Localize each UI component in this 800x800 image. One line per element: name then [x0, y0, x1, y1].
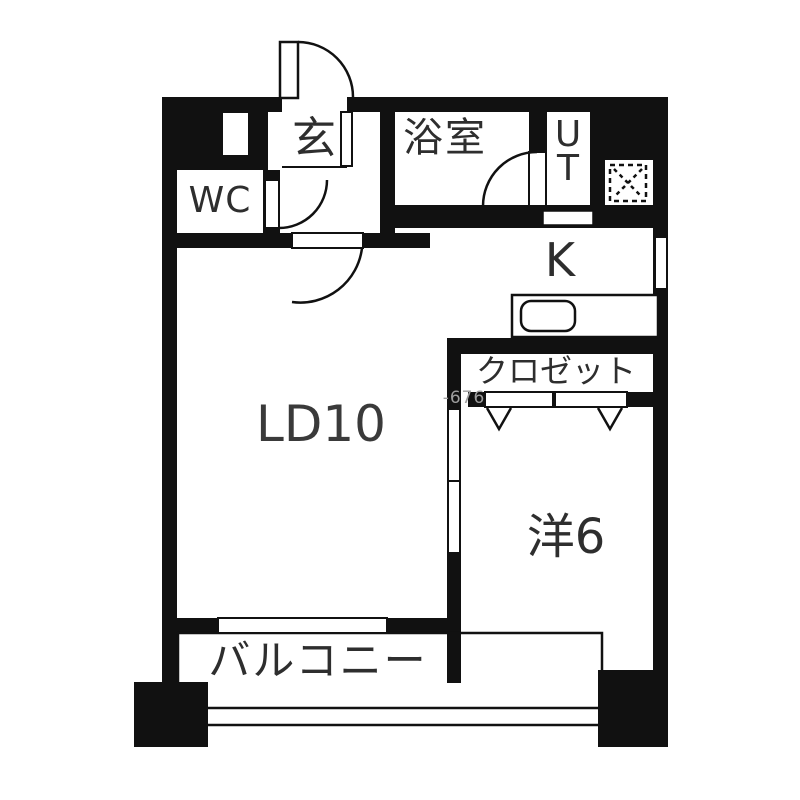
ld-balcony-window	[218, 618, 387, 633]
utility-label: U T	[555, 118, 581, 186]
entrance-door-leaf	[280, 42, 298, 98]
genkan-inner-leaf	[341, 112, 352, 166]
sliding-panel-1	[448, 409, 460, 481]
wc-door-arc	[279, 180, 327, 228]
ld-swing-door	[292, 233, 363, 303]
balcony-divider-wall	[447, 633, 460, 683]
service-zone-south-wall	[380, 205, 668, 228]
entrance-label: 玄	[292, 117, 336, 161]
ps-left-wall	[590, 160, 605, 208]
utility-label-line1: U	[555, 118, 581, 152]
pipe-space	[605, 160, 653, 205]
room-sliding-doors	[448, 409, 460, 553]
entry-corner-wall	[162, 97, 268, 170]
fold-mark-2	[598, 408, 622, 429]
western-room-label: 洋6	[527, 513, 606, 561]
wc-swing-door	[265, 180, 327, 228]
left-wall	[162, 97, 177, 683]
entrance-door-arc	[298, 42, 353, 97]
kitchen-wall-window	[655, 237, 667, 289]
ld-north-wall-right	[363, 233, 430, 248]
living-dining-label: LD10	[256, 399, 386, 449]
entry-wall-notch	[223, 113, 248, 155]
utility-label-line2: T	[555, 152, 581, 186]
wc-door-leaf	[265, 180, 279, 228]
closet-panel-2	[555, 392, 627, 407]
ut-door-opening	[543, 211, 593, 225]
bathroom-label: 浴室	[403, 118, 487, 158]
kitchen-sink	[521, 301, 575, 331]
closet-panel-1	[485, 392, 553, 407]
watermark-text: -676	[443, 388, 486, 408]
kitchen-counter	[512, 295, 658, 337]
bath-ut-divider-wall	[529, 112, 547, 154]
bath-door-leaf	[529, 152, 546, 206]
bath-swing-door	[483, 152, 546, 206]
ld-door-leaf	[292, 233, 363, 248]
wc-label: WC	[189, 183, 252, 219]
balcony-label: バルコニー	[208, 640, 427, 682]
top-wall-right	[347, 97, 668, 112]
floor-plan: 玄 WC 浴室 U T K LD10 クロゼット 洋6 バルコニー -676	[0, 0, 800, 800]
closet-label: クロゼット	[476, 355, 636, 387]
kitchen-label: K	[545, 237, 575, 283]
closet-folding-doors	[485, 392, 627, 429]
ld-door-arc	[292, 248, 362, 303]
sliding-panel-2	[448, 481, 460, 553]
entrance-swing-door	[280, 42, 353, 98]
ld-north-wall-left	[162, 233, 292, 248]
closet-bottom-wall-right	[627, 392, 668, 407]
top-right-wall-mass	[590, 112, 668, 163]
pillar-bottom-right	[598, 670, 668, 747]
fold-mark-1	[487, 408, 511, 429]
pillar-bottom-left	[134, 682, 208, 747]
right-wall	[653, 97, 668, 670]
